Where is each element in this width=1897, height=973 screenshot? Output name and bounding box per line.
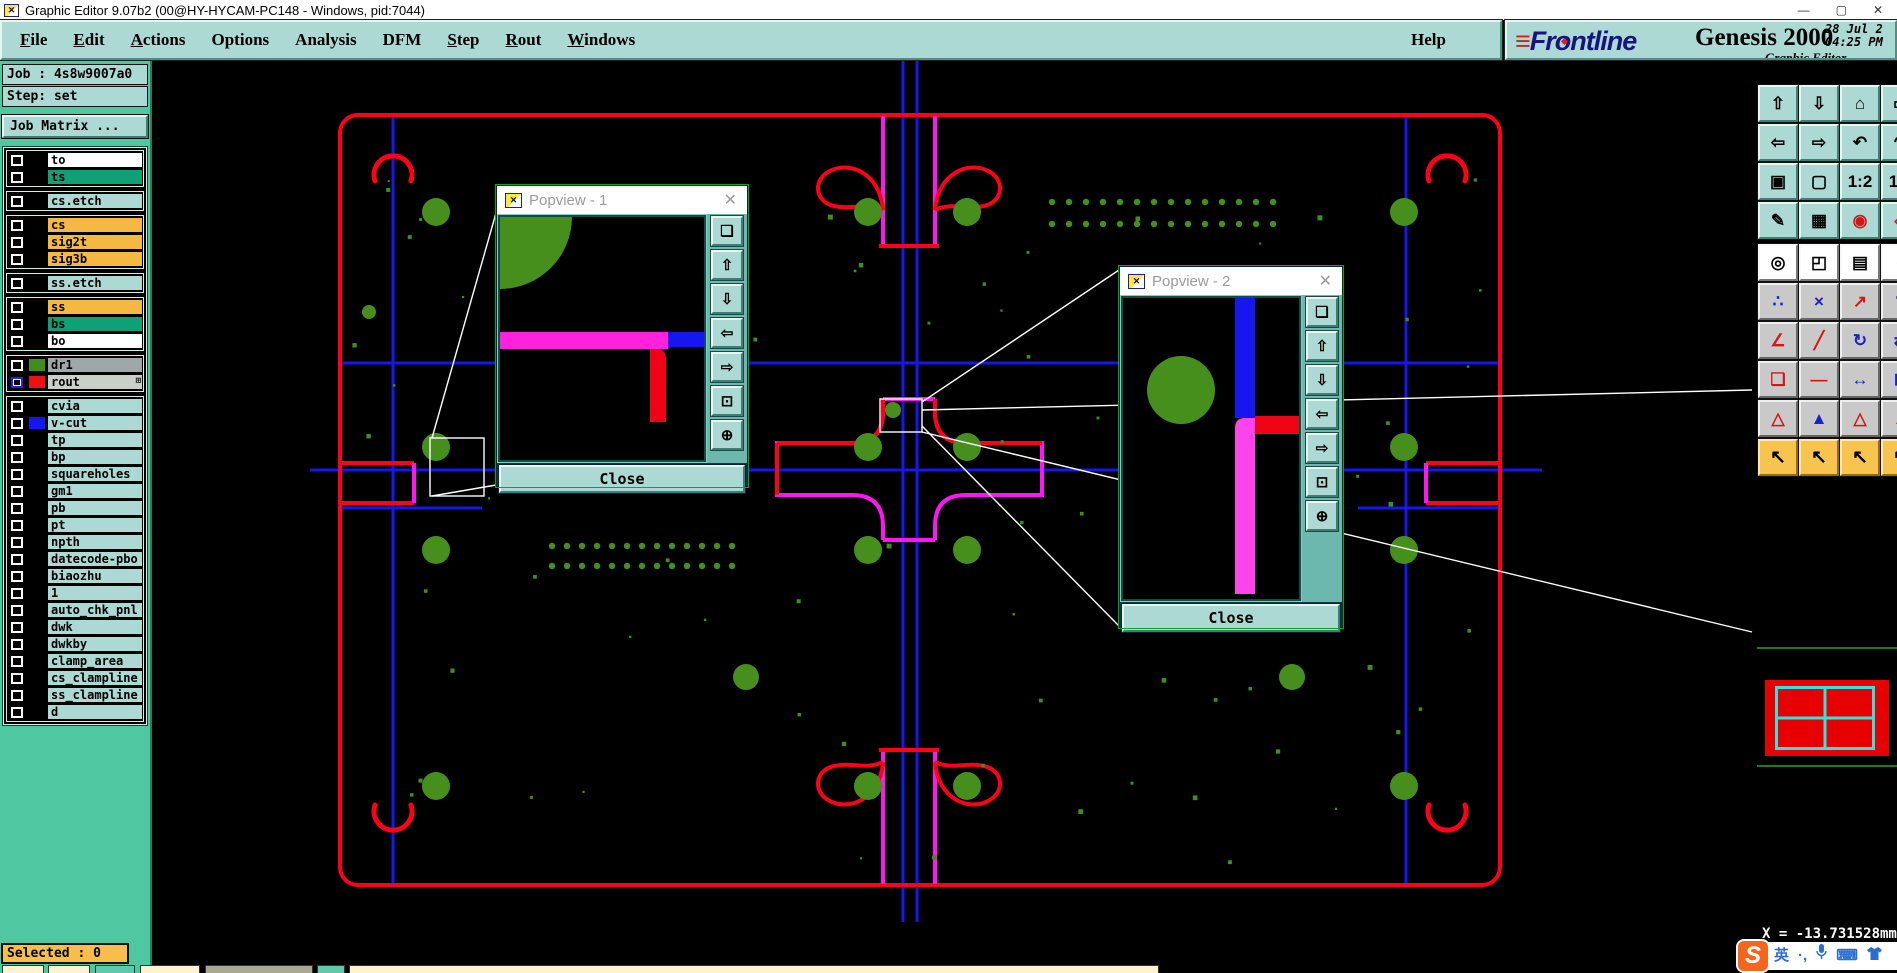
- layer-checkbox-clamp_area[interactable]: [11, 656, 23, 667]
- popview-2-viewport[interactable]: [1121, 296, 1301, 601]
- bottom-window-fragment: [140, 965, 200, 973]
- popout-window-icon: ❏: [720, 222, 733, 240]
- layer-row-ss.etch: ss.etch: [8, 275, 142, 291]
- right-toolbar-panel: ⇧⇩⌂▭⇦⇨↶↷▣▢1:21:1✎▦◉◈◎◰▤◌∴×↗∵∠╱↻⇄❏—↔⊡△▲△▲…: [1757, 60, 1897, 973]
- layer-row-cs_clampline: cs_clampline: [8, 670, 142, 686]
- menu-dfm[interactable]: DFM: [383, 30, 422, 49]
- zoom-fit-button[interactable]: ⊡: [711, 386, 743, 416]
- layer-row-gm1: gm1: [8, 483, 142, 499]
- layer-name-tp[interactable]: tp: [48, 433, 142, 447]
- measure-ruler-icon: ▤: [1852, 253, 1868, 273]
- layer-name-cs[interactable]: cs: [48, 218, 142, 232]
- layer-color-swatch: [29, 587, 45, 599]
- pan-view-down-icon: ⇩: [1812, 94, 1826, 114]
- layer-name-dr1[interactable]: dr1: [48, 358, 142, 372]
- menu-rout[interactable]: Rout: [506, 30, 542, 49]
- overview-thumbnail[interactable]: [1765, 680, 1889, 756]
- overview-grid-icon: [1775, 686, 1875, 750]
- layer-color-swatch: [29, 236, 45, 248]
- triangle-tool-2-icon: ▲: [1811, 409, 1828, 429]
- layer-row-squareholes: squareholes: [8, 466, 142, 482]
- layer-name-ss_clampline[interactable]: ss_clampline: [48, 688, 142, 702]
- triangle-tool-4-button[interactable]: ▲: [1881, 400, 1897, 437]
- mirror-feature-button[interactable]: ⇄: [1881, 322, 1897, 359]
- menu-items: FileEditActionsOptionsAnalysisDFMStepRou…: [20, 30, 661, 50]
- layer-color-swatch: [29, 400, 45, 412]
- delete-feature-button[interactable]: ×: [1799, 283, 1839, 320]
- menu-help[interactable]: Help: [1411, 30, 1446, 50]
- popview-2-close-button[interactable]: Close: [1122, 604, 1340, 632]
- scale-1-2-button[interactable]: 1:2: [1840, 163, 1880, 200]
- layer-color-swatch: [29, 655, 45, 667]
- bottom-window-fragment: [317, 965, 345, 973]
- layer-checkbox-bs[interactable]: [11, 319, 23, 330]
- layer-row-bs: bs: [8, 316, 142, 332]
- select-filter-button[interactable]: ↖: [1881, 439, 1897, 476]
- menu-step[interactable]: Step: [447, 30, 479, 49]
- next-view-button[interactable]: ↷: [1881, 124, 1897, 161]
- delete-feature-icon: ×: [1814, 292, 1824, 312]
- menu-file[interactable]: File: [20, 30, 47, 49]
- layer-checkbox-v-cut[interactable]: [11, 418, 23, 429]
- pan-view-left-icon: ⇦: [1771, 133, 1785, 153]
- zoom-out-fit-button[interactable]: ▣: [1758, 163, 1798, 200]
- layer-row-d: d: [8, 704, 142, 720]
- layer-color-swatch: [29, 502, 45, 514]
- spacing-measure-button[interactable]: ↔: [1840, 361, 1880, 398]
- menubar: FileEditActionsOptionsAnalysisDFMStepRou…: [0, 20, 1502, 60]
- home-view-icon: ⌂: [1855, 94, 1865, 114]
- layer-row-1: 1: [8, 585, 142, 601]
- pan-right-icon: ⇨: [721, 358, 734, 376]
- layer-row-ss_clampline: ss_clampline: [8, 687, 142, 703]
- layer-color-swatch: [29, 468, 45, 480]
- pan-down-button[interactable]: ⇩: [711, 284, 743, 314]
- pan-right-button[interactable]: ⇨: [1306, 433, 1338, 463]
- layer-row-ss: ss: [8, 299, 142, 315]
- close-icon[interactable]: ✕: [1873, 3, 1883, 17]
- main-canvas[interactable]: [152, 60, 1757, 973]
- job-matrix-button[interactable]: Job Matrix ...: [2, 115, 148, 138]
- layer-badge-icon: ⊞: [136, 376, 141, 386]
- layer-checkbox-sig2t[interactable]: [11, 237, 23, 248]
- select-frame-button[interactable]: ↖: [1799, 439, 1839, 476]
- pcb-panel-drawing: [152, 60, 1757, 973]
- layer-color-swatch: [29, 434, 45, 446]
- pan-up-button[interactable]: ⇧: [711, 250, 743, 280]
- layer-name-squareholes[interactable]: squareholes: [48, 467, 142, 481]
- window-view-button[interactable]: ▭: [1881, 85, 1897, 122]
- layer-name-d[interactable]: d: [48, 705, 142, 719]
- layer-row-bp: bp: [8, 449, 142, 465]
- layer-row-tp: tp: [8, 432, 142, 448]
- layer-name-pt[interactable]: pt: [48, 518, 142, 532]
- layer-checkbox-tp[interactable]: [11, 435, 23, 446]
- layer-checkbox-cs[interactable]: [11, 220, 23, 231]
- rotate-feature-icon: ↻: [1853, 331, 1867, 351]
- layer-color-swatch: [29, 335, 45, 347]
- layer-color-swatch: [29, 604, 45, 616]
- zoom-fit-icon: ⊡: [1316, 473, 1329, 491]
- measure-ruler-button[interactable]: ▤: [1840, 244, 1880, 281]
- angle-tool-button[interactable]: ∠: [1758, 322, 1798, 359]
- triangle-tool-4-icon: ▲: [1893, 409, 1897, 429]
- bottom-window-fragment: [349, 965, 1159, 973]
- keyboard-icon[interactable]: ⌨: [1836, 943, 1858, 969]
- layer-row-cs: cs: [8, 217, 142, 233]
- select-feature-button[interactable]: ◎: [1758, 244, 1798, 281]
- popview-2-window: ✕ Popview - 2 ✕ ❏⇧⇩⇦⇨⊡⊕ Close: [1119, 266, 1343, 628]
- layer-color-swatch: [29, 417, 45, 429]
- zoom-fit-button[interactable]: ⊡: [1306, 467, 1338, 497]
- layer-color-swatch: [29, 171, 45, 183]
- layer-row-datecode-pbo: datecode-pbo: [8, 551, 142, 567]
- layer-checkbox-auto_chk_pnl[interactable]: [11, 605, 23, 616]
- triangle-tool-3-button[interactable]: △: [1840, 400, 1880, 437]
- product-subtitle: Graphic Editor: [1765, 50, 1846, 60]
- grid-toggle-icon: ▦: [1811, 211, 1827, 231]
- layer-name-biaozhu[interactable]: biaozhu: [48, 569, 142, 583]
- separator: [1757, 647, 1897, 649]
- layer-checkbox-cs.etch[interactable]: [11, 196, 23, 207]
- highlight-connection-button[interactable]: ◉: [1840, 202, 1880, 239]
- layer-row-cvia: cvia: [8, 398, 142, 414]
- layer-checkbox-pb[interactable]: [11, 503, 23, 514]
- bottom-tooling-slot: [818, 750, 1000, 884]
- datetime: 28 Jul 2 04:25 PM: [1825, 23, 1897, 49]
- copy-dot-button[interactable]: ∵: [1881, 283, 1897, 320]
- sidebar: Job : 4s8w9007a0 Step: set Job Matrix ..…: [0, 60, 152, 973]
- triangle-tool-1-button[interactable]: △: [1758, 400, 1798, 437]
- pan-right-icon: ⇨: [1316, 439, 1329, 457]
- layer-row-v-cut: v-cut: [8, 415, 142, 431]
- layer-color-swatch: [29, 706, 45, 718]
- pan-up-icon: ⇧: [721, 256, 734, 274]
- pan-view-down-button[interactable]: ⇩: [1799, 85, 1839, 122]
- pan-view-right-icon: ⇨: [1812, 133, 1826, 153]
- layer-color-swatch: [29, 485, 45, 497]
- scale-1-1-icon: 1:1: [1889, 172, 1897, 192]
- zoom-area-button[interactable]: ◰: [1799, 244, 1839, 281]
- scale-1-2-icon: 1:2: [1848, 172, 1873, 192]
- show-net-nodes-icon: ∴: [1773, 292, 1784, 312]
- layer-color-swatch: [29, 376, 45, 388]
- layer-checkbox-ts[interactable]: [11, 172, 23, 183]
- layer-color-swatch: [29, 536, 45, 548]
- popout-window-button[interactable]: ❏: [711, 216, 743, 246]
- step-label: Step: set: [2, 86, 148, 107]
- menu-options[interactable]: Options: [211, 30, 269, 49]
- time-label: 04:25 PM: [1825, 36, 1897, 49]
- layer-row-dr1: dr1: [8, 357, 142, 373]
- layer-color-swatch: [29, 195, 45, 207]
- popview-1-close-button[interactable]: Close: [499, 465, 745, 493]
- layer-name-bo[interactable]: bo: [48, 334, 142, 348]
- layer-name-ss.etch[interactable]: ss.etch: [48, 276, 142, 290]
- layer-row-to: to: [8, 152, 142, 168]
- layer-checkbox-cvia[interactable]: [11, 401, 23, 412]
- window-title: Graphic Editor 9.07b2 (00@HY-HYCAM-PC148…: [25, 3, 425, 18]
- previous-view-icon: ↶: [1853, 133, 1867, 153]
- bottom-window-fragment: [205, 965, 313, 973]
- select-single-icon: ↖: [1770, 446, 1786, 469]
- setup-tools-button[interactable]: ✎: [1758, 202, 1798, 239]
- duplicate-feature-icon: ❏: [1770, 370, 1785, 390]
- grid-toggle-button[interactable]: ▦: [1799, 202, 1839, 239]
- layer-name-gm1[interactable]: gm1: [48, 484, 142, 498]
- stretch-feature-icon: —: [1811, 370, 1828, 390]
- microphone-icon[interactable]: [1816, 943, 1827, 969]
- layer-row-dwk: dwk: [8, 619, 142, 635]
- layer-checkbox-ss[interactable]: [11, 302, 23, 313]
- layer-name-npth[interactable]: npth: [48, 535, 142, 549]
- layer-row-rout: rout⊞: [8, 374, 142, 390]
- layer-checkbox-biaozhu[interactable]: [11, 571, 23, 582]
- popview-1-title: Popview - 1: [529, 192, 607, 209]
- popview-2-toolcol: ❏⇧⇩⇦⇨⊡⊕: [1302, 295, 1342, 602]
- layer-color-swatch: [29, 451, 45, 463]
- layer-name-auto_chk_pnl[interactable]: auto_chk_pnl: [48, 603, 142, 617]
- layer-checkbox-dwkby[interactable]: [11, 639, 23, 650]
- previous-view-button[interactable]: ↶: [1840, 124, 1880, 161]
- window-view-icon: ▭: [1893, 94, 1897, 114]
- layer-color-swatch: [29, 621, 45, 633]
- stretch-feature-button[interactable]: —: [1799, 361, 1839, 398]
- angle-tool-icon: ∠: [1770, 331, 1785, 351]
- layer-color-swatch: [29, 519, 45, 531]
- ime-language-toggle[interactable]: 英: [1774, 943, 1789, 969]
- menu-actions[interactable]: Actions: [131, 30, 186, 49]
- select-pad-button[interactable]: ◌: [1881, 244, 1897, 281]
- layer-checkbox-squareholes[interactable]: [11, 469, 23, 480]
- layer-row-ts: ts: [8, 169, 142, 185]
- pan-left-button[interactable]: ⇦: [711, 318, 743, 348]
- app-icon: ✕: [4, 4, 19, 17]
- layer-checkbox-ss.etch[interactable]: [11, 278, 23, 289]
- triangle-tool-1-icon: △: [1771, 409, 1784, 429]
- selected-count-badge: Selected : 0: [1, 943, 129, 964]
- layer-checkbox-1[interactable]: [11, 588, 23, 599]
- toolbar-grid: ⇧⇩⌂▭⇦⇨↶↷▣▢1:21:1✎▦◉◈◎◰▤◌∴×↗∵∠╱↻⇄❏—↔⊡△▲△▲…: [1757, 85, 1897, 476]
- menu-edit[interactable]: Edit: [73, 30, 104, 49]
- layer-checkbox-bp[interactable]: [11, 452, 23, 463]
- layer-name-cs.etch[interactable]: cs.etch: [48, 194, 142, 208]
- layer-checkbox-gm1[interactable]: [11, 486, 23, 497]
- menu-windows[interactable]: Windows: [567, 30, 635, 49]
- popview-1-viewport[interactable]: [498, 215, 706, 462]
- popview-2-close-icon[interactable]: ✕: [1317, 271, 1334, 291]
- zoom-full-icon: ⊕: [1316, 507, 1329, 525]
- popview-1-window: ✕ Popview - 1 ✕ ❏⇧⇩⇦⇨⊡⊕ Close: [496, 185, 748, 487]
- layer-row-biaozhu: biaozhu: [8, 568, 142, 584]
- pan-right-button[interactable]: ⇨: [711, 352, 743, 382]
- layer-checkbox-bo[interactable]: [11, 336, 23, 347]
- layer-color-swatch: [29, 672, 45, 684]
- pan-left-button[interactable]: ⇦: [1306, 399, 1338, 429]
- pan-view-up-button[interactable]: ⇧: [1758, 85, 1798, 122]
- layer-row-npth: npth: [8, 534, 142, 550]
- popview-icon: ✕: [1128, 274, 1145, 289]
- zoom-in-center-icon: ▢: [1811, 172, 1827, 192]
- maximize-icon[interactable]: ▢: [1836, 3, 1847, 17]
- layer-name-v-cut[interactable]: v-cut: [48, 416, 142, 430]
- layer-color-swatch: [29, 154, 45, 166]
- select-polygon-button[interactable]: ↖: [1840, 439, 1880, 476]
- popview-2-titlebar[interactable]: ✕ Popview - 2 ✕: [1120, 267, 1342, 295]
- layer-checkbox-rout[interactable]: [11, 377, 23, 388]
- layer-color-swatch: [29, 638, 45, 650]
- layer-checkbox-d[interactable]: [11, 707, 23, 718]
- pan-left-icon: ⇦: [1316, 405, 1329, 423]
- zoom-full-button[interactable]: ⊕: [711, 420, 743, 450]
- highlight-connection-icon: ◉: [1853, 211, 1868, 231]
- zoom-fit-icon: ⊡: [721, 392, 734, 410]
- spacing-measure-icon: ↔: [1852, 370, 1869, 390]
- triangle-tool-2-button[interactable]: ▲: [1799, 400, 1839, 437]
- layer-color-swatch: [29, 219, 45, 231]
- product-name: Genesis 2000: [1695, 24, 1833, 52]
- layer-color-swatch: [29, 689, 45, 701]
- layer-color-swatch: [29, 318, 45, 330]
- highlight-net-button[interactable]: ◈: [1881, 202, 1897, 239]
- window-titlebar: ✕ Graphic Editor 9.07b2 (00@HY-HYCAM-PC1…: [0, 0, 1897, 20]
- layer-color-swatch: [29, 277, 45, 289]
- pan-up-button[interactable]: ⇧: [1306, 331, 1338, 361]
- layer-name-ss[interactable]: ss: [48, 300, 142, 314]
- layer-checkbox-datecode-pbo[interactable]: [11, 554, 23, 565]
- move-feature-icon: ↗: [1853, 292, 1867, 312]
- layer-name-sig3b[interactable]: sig3b: [48, 252, 142, 266]
- layer-checkbox-dwk[interactable]: [11, 622, 23, 633]
- layer-name-bs[interactable]: bs: [48, 317, 142, 331]
- layer-row-auto_chk_pnl: auto_chk_pnl: [8, 602, 142, 618]
- bottom-window-fragment: [95, 965, 135, 973]
- separator: [1757, 765, 1897, 767]
- ime-punctuation-icon[interactable]: ·,: [1798, 943, 1807, 969]
- popview-1-toolcol: ❏⇧⇩⇦⇨⊡⊕: [707, 214, 747, 463]
- layer-name-to[interactable]: to: [48, 153, 142, 167]
- layer-list: totscs.etchcssig2tsig3bss.etchssbsbodr1r…: [3, 147, 147, 725]
- select-polygon-icon: ↖: [1852, 446, 1868, 469]
- pan-down-button[interactable]: ⇩: [1306, 365, 1338, 395]
- layer-row-sig3b: sig3b: [8, 251, 142, 267]
- layer-name-rout[interactable]: rout⊞: [48, 375, 142, 389]
- layer-color-swatch: [29, 301, 45, 313]
- scale-1-1-button[interactable]: 1:1: [1881, 163, 1897, 200]
- popview-2-title: Popview - 2: [1152, 273, 1230, 290]
- layer-color-swatch: [29, 553, 45, 565]
- layer-name-1[interactable]: 1: [48, 586, 142, 600]
- ime-toolbar: S 英 ·, ⌨: [1752, 942, 1897, 970]
- select-single-button[interactable]: ↖: [1758, 439, 1798, 476]
- setup-tools-icon: ✎: [1771, 211, 1785, 231]
- layer-checkbox-npth[interactable]: [11, 537, 23, 548]
- layer-checkbox-to[interactable]: [11, 155, 23, 166]
- pan-left-icon: ⇦: [721, 324, 734, 342]
- popout-window-button[interactable]: ❏: [1306, 297, 1338, 327]
- pan-down-icon: ⇩: [721, 290, 734, 308]
- layer-name-bp[interactable]: bp: [48, 450, 142, 464]
- zoom-out-fit-icon: ▣: [1770, 172, 1786, 192]
- rotate-feature-button[interactable]: ↻: [1840, 322, 1880, 359]
- cursor-coordinates: X = -13.731528mm: [1762, 926, 1897, 942]
- popview-1-titlebar[interactable]: ✕ Popview - 1 ✕: [497, 186, 747, 214]
- menu-analysis[interactable]: Analysis: [295, 30, 356, 49]
- zoom-area-icon: ◰: [1811, 253, 1827, 273]
- layer-name-cs_clampline[interactable]: cs_clampline: [48, 671, 142, 685]
- popout-window-icon: ❏: [1315, 303, 1328, 321]
- zoom-full-button[interactable]: ⊕: [1306, 501, 1338, 531]
- skin-shirt-icon[interactable]: [1867, 943, 1882, 969]
- popview-icon: ✕: [505, 193, 522, 208]
- layer-color-swatch: [29, 253, 45, 265]
- layer-checkbox-dr1[interactable]: [11, 360, 23, 371]
- layer-checkbox-sig3b[interactable]: [11, 254, 23, 265]
- pan-view-up-icon: ⇧: [1771, 94, 1785, 114]
- layer-checkbox-ss_clampline[interactable]: [11, 690, 23, 701]
- layer-row-dwkby: dwkby: [8, 636, 142, 652]
- layer-name-sig2t[interactable]: sig2t: [48, 235, 142, 249]
- blue-guide-lines: [310, 60, 1542, 922]
- zoom-full-icon: ⊕: [721, 426, 734, 444]
- sogou-logo-icon[interactable]: S: [1736, 939, 1770, 973]
- snap-pad-button[interactable]: ⊡: [1881, 361, 1897, 398]
- layer-color-swatch: [29, 570, 45, 582]
- layer-name-dwkby[interactable]: dwkby: [48, 637, 142, 651]
- layer-row-clamp_area: clamp_area: [8, 653, 142, 669]
- layer-row-bo: bo: [8, 333, 142, 349]
- pan-view-right-button[interactable]: ⇨: [1799, 124, 1839, 161]
- slope-line-icon: ╱: [1814, 331, 1824, 351]
- layer-checkbox-pt[interactable]: [11, 520, 23, 531]
- home-view-button[interactable]: ⌂: [1840, 85, 1880, 122]
- layer-row-pb: pb: [8, 500, 142, 516]
- top-tooling-slot: [818, 116, 1000, 246]
- bottom-window-fragment: [48, 965, 90, 973]
- job-label: Job : 4s8w9007a0: [2, 64, 148, 85]
- pan-down-icon: ⇩: [1316, 371, 1329, 389]
- minimize-icon[interactable]: —: [1798, 3, 1810, 17]
- show-net-nodes-button[interactable]: ∴: [1758, 283, 1798, 320]
- layer-checkbox-cs_clampline[interactable]: [11, 673, 23, 684]
- logo-speedlines-icon: ≡: [1515, 26, 1529, 56]
- slope-line-button[interactable]: ╱: [1799, 322, 1839, 359]
- layer-name-ts[interactable]: ts: [48, 170, 142, 184]
- layer-name-clamp_area[interactable]: clamp_area: [48, 654, 142, 668]
- pan-view-left-button[interactable]: ⇦: [1758, 124, 1798, 161]
- layer-row-cs.etch: cs.etch: [8, 193, 142, 209]
- select-feature-icon: ◎: [1771, 253, 1786, 273]
- pan-up-icon: ⇧: [1316, 337, 1329, 355]
- layer-row-sig2t: sig2t: [8, 234, 142, 250]
- frontline-logo: ≡Frontline: [1515, 26, 1636, 57]
- layer-color-swatch: [29, 359, 45, 371]
- layer-name-datecode-pbo[interactable]: datecode-pbo: [48, 552, 142, 566]
- select-filter-icon: ↖: [1893, 446, 1897, 469]
- layer-name-dwk[interactable]: dwk: [48, 620, 142, 634]
- brand-panel: ≡Frontline Genesis 2000 Graphic Editor 2…: [1505, 20, 1897, 60]
- triangle-tool-3-icon: △: [1853, 409, 1866, 429]
- layer-row-pt: pt: [8, 517, 142, 533]
- layer-name-pb[interactable]: pb: [48, 501, 142, 515]
- layer-name-cvia[interactable]: cvia: [48, 399, 142, 413]
- select-frame-icon: ↖: [1811, 446, 1827, 469]
- zoom-in-center-button[interactable]: ▢: [1799, 163, 1839, 200]
- duplicate-feature-button[interactable]: ❏: [1758, 361, 1798, 398]
- popview-1-close-icon[interactable]: ✕: [722, 190, 739, 210]
- bottom-window-fragment: [2, 965, 44, 973]
- move-feature-button[interactable]: ↗: [1840, 283, 1880, 320]
